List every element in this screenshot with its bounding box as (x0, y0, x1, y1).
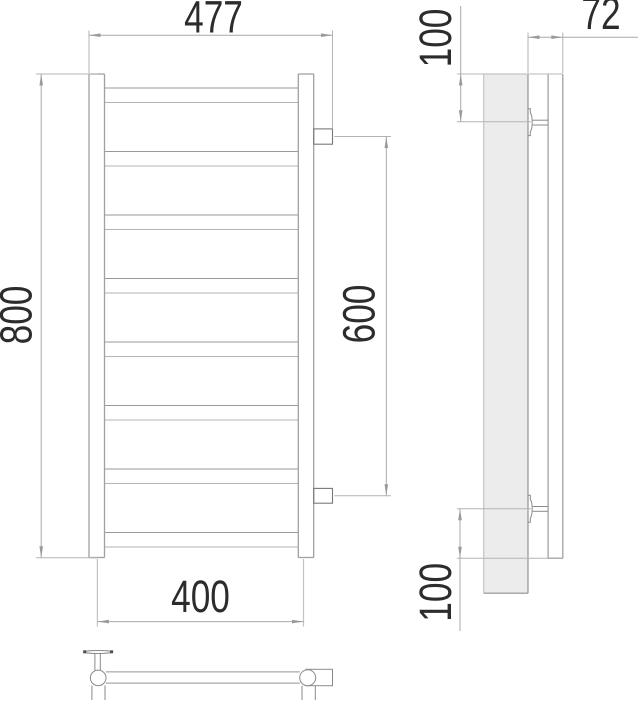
svg-text:600: 600 (333, 285, 385, 344)
svg-text:800: 800 (0, 286, 42, 345)
svg-text:400: 400 (171, 571, 230, 623)
svg-text:72: 72 (581, 0, 620, 39)
svg-text:100: 100 (410, 9, 462, 68)
svg-text:100: 100 (410, 563, 462, 622)
svg-text:477: 477 (184, 0, 243, 42)
